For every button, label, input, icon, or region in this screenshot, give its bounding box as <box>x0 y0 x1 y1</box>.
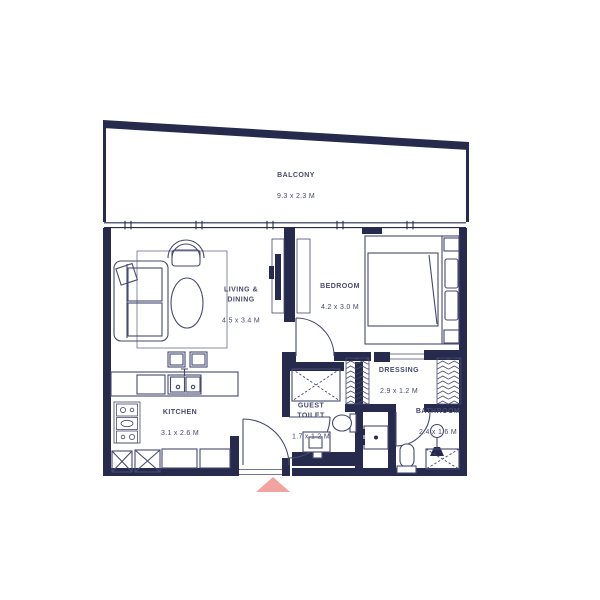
wall-stub <box>282 352 296 362</box>
wardrobe <box>437 358 461 404</box>
coffee-table <box>171 278 203 328</box>
balcony-right-wall <box>466 144 469 222</box>
bathroom-fixtures <box>397 425 459 474</box>
bathroom-west-wall <box>388 404 396 476</box>
bathroom-wc <box>397 444 416 473</box>
left-wall <box>103 228 111 476</box>
balcony-left-wall <box>103 126 106 222</box>
nightstand <box>444 330 459 343</box>
tv-icon <box>275 254 281 300</box>
guest-toilet-north-wall <box>282 362 344 371</box>
bed-sheet <box>368 253 438 326</box>
bed <box>365 236 459 344</box>
bathroom-north-wall <box>424 404 460 412</box>
sheet-fold <box>429 255 437 324</box>
sofa <box>114 261 168 341</box>
right-wall <box>459 228 467 476</box>
pillow <box>445 259 458 288</box>
guest-shower <box>292 369 340 401</box>
interior-walls <box>230 228 460 476</box>
bedroom-south-wall <box>374 352 390 362</box>
guest-toilet-south-wall <box>292 452 355 466</box>
entrance-door <box>239 419 289 475</box>
balcony <box>103 120 469 229</box>
wardrobe <box>346 358 369 404</box>
bathroom-door <box>396 412 430 446</box>
pillow <box>445 291 458 320</box>
guest-wc <box>333 414 357 432</box>
cooktop <box>114 402 140 443</box>
living-room-furniture <box>114 239 284 348</box>
bar-stools <box>168 352 207 367</box>
window-pier <box>362 228 382 234</box>
washing-machine <box>362 426 389 449</box>
bathroom-sink <box>430 425 444 457</box>
balcony-top-wall <box>103 120 469 150</box>
kitchen-fixtures <box>111 352 238 472</box>
kitchen-sink <box>168 369 201 394</box>
nightstand <box>444 238 459 251</box>
dressing-wardrobes <box>346 358 461 404</box>
floor-plan: BALCONY 9.3 x 2.3 M LIVING & DINING 4.5 … <box>0 0 600 600</box>
floor-plan-drawing <box>0 0 600 600</box>
tv-wall <box>284 228 295 322</box>
tv-unit <box>269 239 284 313</box>
armchair <box>168 240 204 266</box>
bathroom-shower <box>426 449 459 469</box>
guest-toilet-west-wall <box>282 371 290 417</box>
bedroom-cabinet <box>297 239 310 313</box>
bedroom-door <box>296 318 334 356</box>
entrance-arrow <box>256 477 290 492</box>
utility-niche <box>362 426 389 449</box>
hall-kitchen-wall <box>230 436 239 476</box>
